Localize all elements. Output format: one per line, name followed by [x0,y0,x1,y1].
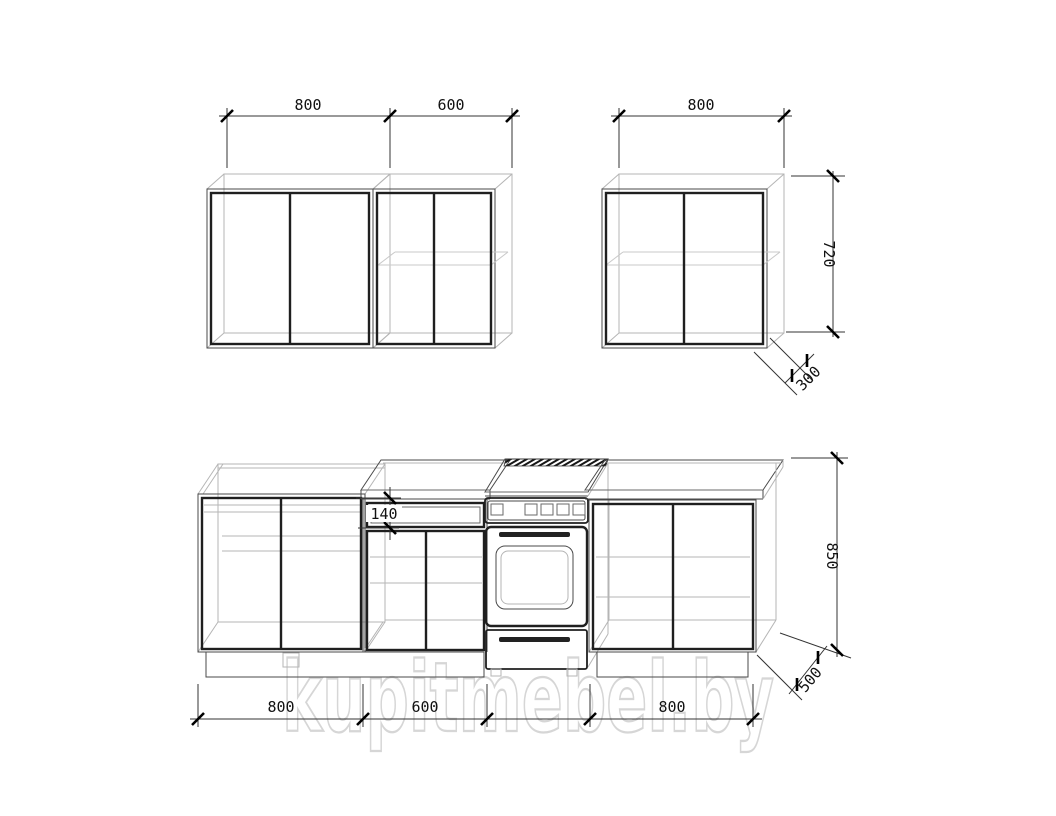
dim-label-lower-cab2-width: 600 [411,698,438,716]
wall-cabinet-middle-600 [373,174,512,348]
stove-dial [491,504,503,515]
watermark-text: kupitmebel.by [282,642,774,754]
upper-width-dimension-right: 800 [611,96,792,168]
wall-cabinet-right-800 [602,174,784,348]
technical-drawing: kupitmebel.by [0,0,1056,816]
dim-label-upper-cab1-width: 800 [294,96,321,114]
upper-width-dimensions-left: 800 600 [219,96,520,168]
dim-label-lower-depth: 500 [795,664,826,696]
dim-label-drawer-height: 140 [370,505,397,523]
drawer-handle [499,637,570,642]
oven-window [496,546,573,609]
base-cabinet-left-800 [198,464,385,652]
watermark: kupitmebel.by [282,642,774,754]
upper-view: 800 600 800 720 300 [207,96,845,395]
stove-knob [541,504,553,515]
lower-height-dimension: 850 [780,452,851,658]
dim-label-upper-height: 720 [820,240,838,267]
upper-height-dimension: 720 [786,170,845,338]
burner-strip [504,459,608,466]
stove-knob [557,504,569,515]
stove-knob [573,504,585,515]
dim-label-lower-cab3-width: 800 [658,698,685,716]
dim-label-upper-depth: 300 [793,363,825,395]
dim-label-upper-cab2-width: 600 [437,96,464,114]
wall-cabinet-left-800 [207,174,390,348]
upper-depth-dimension: 300 [754,338,824,395]
stove-knob [525,504,537,515]
kitchen-blueprint-svg: kupitmebel.by [0,0,1056,816]
dim-label-lower-height: 850 [823,542,841,569]
countertop [585,460,783,490]
dim-label-lower-cab1-width: 800 [267,698,294,716]
oven-handle [499,532,570,537]
dim-label-upper-cab3-width: 800 [687,96,714,114]
